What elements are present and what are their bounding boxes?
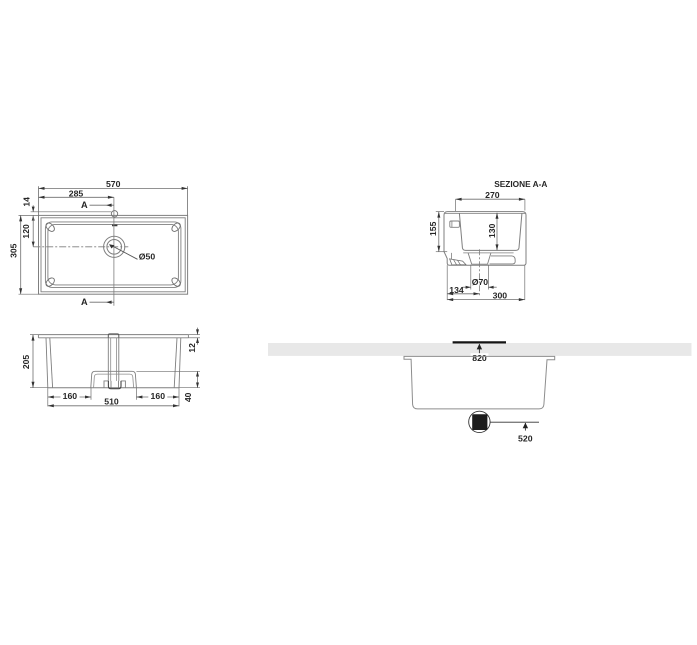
svg-text:120: 120 <box>21 224 31 239</box>
svg-text:160: 160 <box>151 391 166 401</box>
svg-text:134: 134 <box>449 285 464 295</box>
svg-text:160: 160 <box>63 391 78 401</box>
svg-text:300: 300 <box>493 290 508 300</box>
svg-text:570: 570 <box>106 179 121 189</box>
svg-text:285: 285 <box>69 188 84 198</box>
svg-text:130: 130 <box>487 223 497 238</box>
svg-text:A: A <box>81 297 88 307</box>
svg-text:520: 520 <box>518 434 533 444</box>
svg-text:510: 510 <box>104 397 119 407</box>
svg-text:Ø50: Ø50 <box>139 252 156 262</box>
svg-text:12: 12 <box>187 343 197 353</box>
svg-text:SEZIONE A-A: SEZIONE A-A <box>494 179 547 189</box>
svg-text:270: 270 <box>485 190 500 200</box>
svg-text:40: 40 <box>183 392 193 402</box>
svg-text:820: 820 <box>472 353 487 363</box>
svg-text:14: 14 <box>22 197 32 207</box>
svg-text:155: 155 <box>428 221 438 236</box>
svg-text:305: 305 <box>9 243 19 258</box>
svg-text:Ø70: Ø70 <box>472 277 489 287</box>
svg-text:A: A <box>81 200 88 210</box>
svg-text:205: 205 <box>21 355 31 370</box>
